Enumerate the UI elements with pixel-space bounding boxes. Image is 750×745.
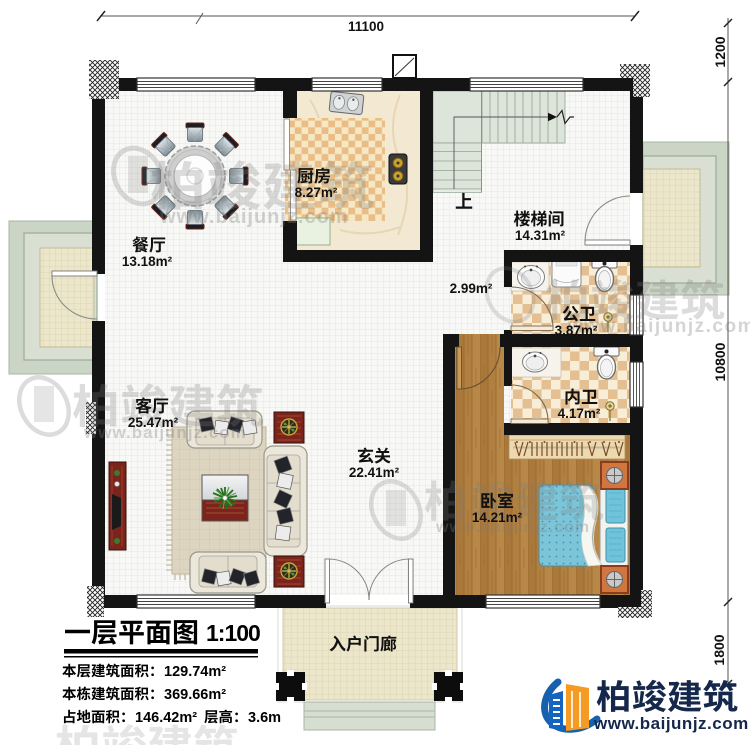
svg-text:1:100: 1:100 (206, 620, 260, 646)
svg-text:10800: 10800 (712, 342, 728, 381)
svg-text:25.47m²: 25.47m² (128, 415, 179, 430)
svg-text:11100: 11100 (348, 19, 384, 34)
svg-text:146.42m²: 146.42m² (135, 710, 197, 726)
svg-text:4.17m²: 4.17m² (558, 406, 601, 421)
svg-text:www.baijunjz.com: www.baijunjz.com (159, 206, 349, 228)
svg-text:14.21m²: 14.21m² (472, 510, 523, 525)
svg-text:www.baijunjz.com: www.baijunjz.com (593, 714, 749, 733)
svg-text:129.74m²: 129.74m² (164, 664, 226, 680)
svg-text:1200: 1200 (712, 36, 728, 67)
svg-text:2.99m²: 2.99m² (450, 281, 493, 296)
svg-text:22.41m²: 22.41m² (349, 465, 400, 480)
svg-text:14.31m²: 14.31m² (515, 228, 566, 243)
svg-text:369.66m²: 369.66m² (164, 687, 226, 703)
svg-text:1800: 1800 (711, 634, 727, 665)
svg-text:3.6m: 3.6m (248, 710, 281, 726)
svg-text:8.27m²: 8.27m² (295, 185, 338, 200)
svg-text:13.18m²: 13.18m² (122, 254, 173, 269)
svg-text:3.87m²: 3.87m² (555, 323, 598, 338)
